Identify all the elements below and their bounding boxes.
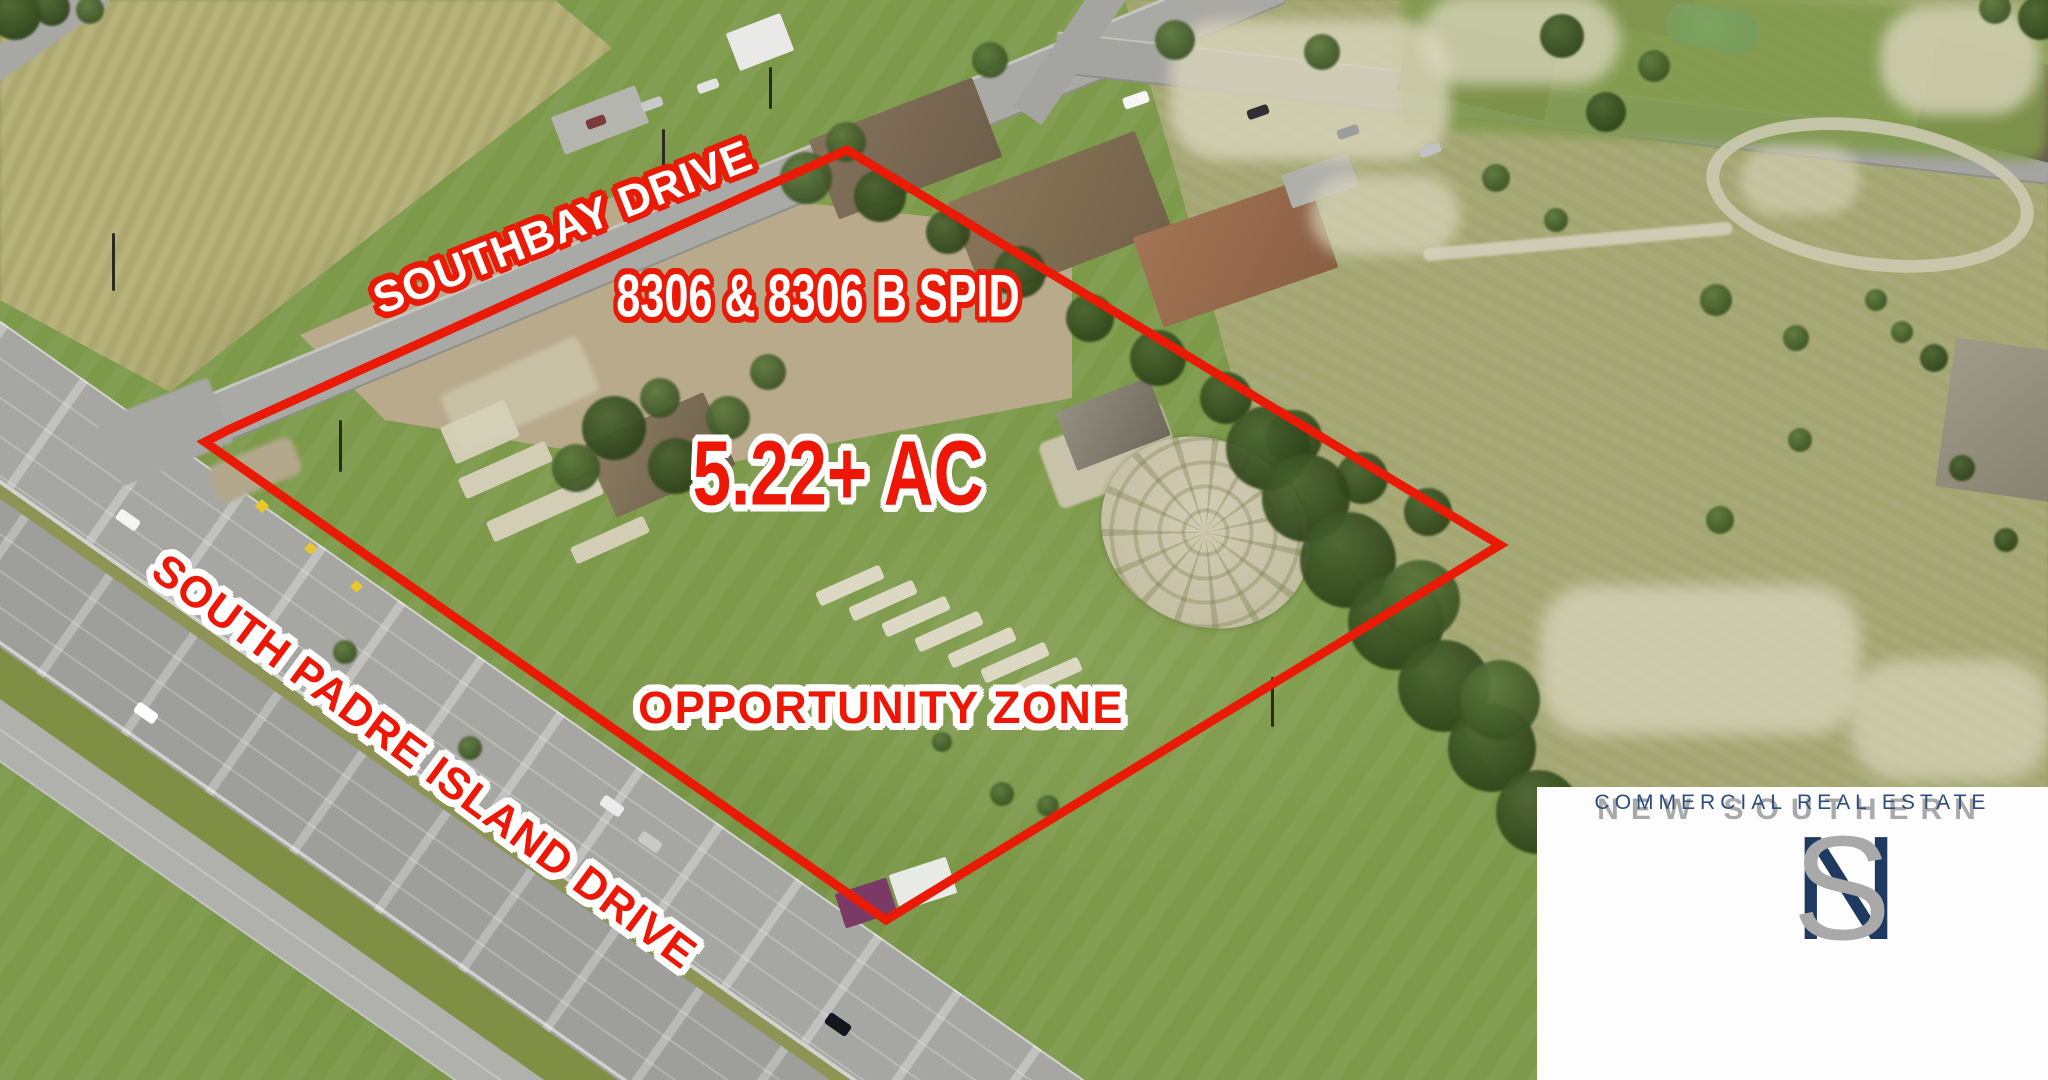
broker-logo: NS NEW SOUTHERN COMMERCIAL REAL ESTATE <box>1537 787 2048 1080</box>
aerial-photo: SOUTHBAY DRIVE 8306 & 8306 B SPID 5.22+ … <box>0 0 2048 1080</box>
label-opportunity-zone: OPPORTUNITY ZONE <box>638 682 1124 734</box>
logo-letter-s: S <box>1793 815 1885 963</box>
label-acreage: 5.22+ AC <box>693 422 984 527</box>
logo-tagline: COMMERCIAL REAL ESTATE <box>1595 791 1991 815</box>
label-address: 8306 & 8306 B SPID <box>616 262 1019 331</box>
